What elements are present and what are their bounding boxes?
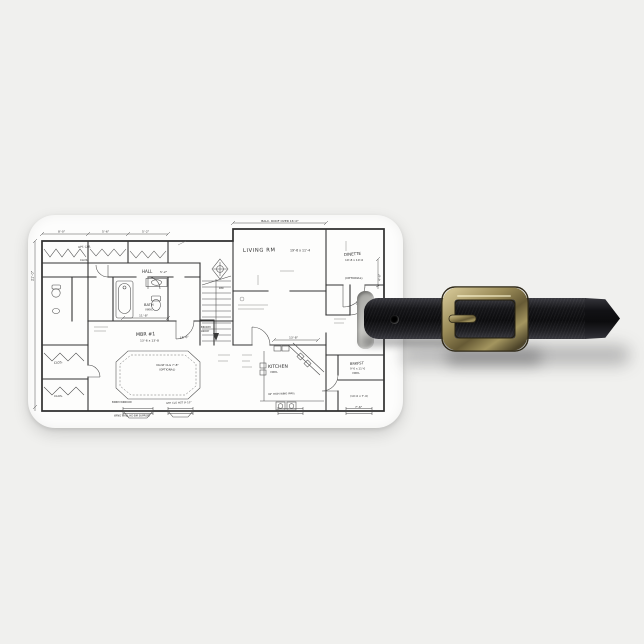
luggage-tag: BALC. ROOF OVER 16'-0" LIVING RM 19'-6 x… xyxy=(28,215,403,428)
note-vault-optional: (OPTIONAL) xyxy=(159,368,175,372)
hall-dim: 5'-2" xyxy=(160,270,168,274)
sketch-detail-lines xyxy=(94,241,360,367)
window-symbols xyxy=(123,407,372,418)
ceiling-fixture-symbol xyxy=(212,259,228,279)
strap-rivet-hole xyxy=(390,315,399,324)
tray-ceiling-octagon xyxy=(116,351,200,399)
note-optional-right: (OPTIONAL) xyxy=(345,276,363,280)
dinette-dims: 10'-8 x 10'-0 xyxy=(345,258,363,262)
mbr-dim2: 15'-0" xyxy=(180,335,190,340)
room-br-dims: (14'-0 x 7'-0) xyxy=(350,394,368,398)
mbr-dims: 13'-6 x 13'-8 xyxy=(140,339,159,343)
room-label-dinette: DINETTE xyxy=(344,251,362,257)
closet-label-broom: BROOM xyxy=(201,325,211,329)
room-label-brkfst: BRKFST xyxy=(350,361,365,366)
note-wing-wall: 36" HIGH WING WALL xyxy=(268,391,296,396)
bathroom-fixtures xyxy=(52,279,167,319)
note-gyp-clg: GYP. CLG HGT 9'-10" xyxy=(166,400,192,405)
kitchen-fixtures xyxy=(260,343,324,410)
living-dims: 19'-6 x 11'-4 xyxy=(290,249,310,253)
room-label-bath: BATH xyxy=(144,303,154,307)
dim-13-8: 13'-8" xyxy=(289,336,299,340)
closet-label-b: CLOS. xyxy=(54,394,63,398)
leather-strap-tip xyxy=(585,298,620,339)
closet-label-a: CLOS. xyxy=(54,360,63,365)
brass-buckle xyxy=(440,285,530,357)
dim-4-6: 4'-6" xyxy=(378,273,382,281)
dim-11-8: 11'-8" xyxy=(139,314,149,318)
stairs-dn-label: DN xyxy=(219,286,224,290)
dim-7-6: 7'-6" xyxy=(355,405,363,409)
brkfst-floor: VINYL xyxy=(352,371,360,375)
closet-label-top2: CLOS. xyxy=(80,258,88,262)
note-bdrm-window: BDRM WINDOW xyxy=(112,400,132,404)
kitchen-floor: VINYL xyxy=(270,370,278,374)
bath-floor: VINYL xyxy=(145,308,153,312)
dimension-lines xyxy=(33,221,380,411)
dim-5-6: 5'-6" xyxy=(102,230,110,234)
room-label-living: LIVING RM xyxy=(243,247,276,254)
room-label-hall: HALL xyxy=(142,269,153,274)
room-label-mbr: MBR #1 xyxy=(136,331,156,338)
note-balcony: BALC. ROOF OVER 16'-0" xyxy=(261,219,299,223)
dim-8ft: 8'-0" xyxy=(58,230,66,234)
dim-21ft: 21'-0" xyxy=(31,270,35,281)
floor-plan-print: BALC. ROOF OVER 16'-0" LIVING RM 19'-6 x… xyxy=(28,215,403,428)
interior-walls xyxy=(42,229,384,411)
note-vault-clg: VAULT CLG 7'-8" xyxy=(156,363,179,367)
closet-label-lndry: LNDRY xyxy=(201,329,210,333)
buckle-prong xyxy=(449,315,476,323)
brkfst-dims: 9'-0 x 11'-0 xyxy=(350,367,366,371)
note-support: WING WALL HD BM SUPPORT xyxy=(114,414,151,418)
plan-labels: BALC. ROOF OVER 16'-0" LIVING RM 19'-6 x… xyxy=(31,219,382,418)
closet-label-top: OPT. CAB. xyxy=(78,245,91,249)
product-photo: BALC. ROOF OVER 16'-0" LIVING RM 19'-6 x… xyxy=(0,0,644,644)
dim-5-2: 5'-2" xyxy=(142,230,150,234)
